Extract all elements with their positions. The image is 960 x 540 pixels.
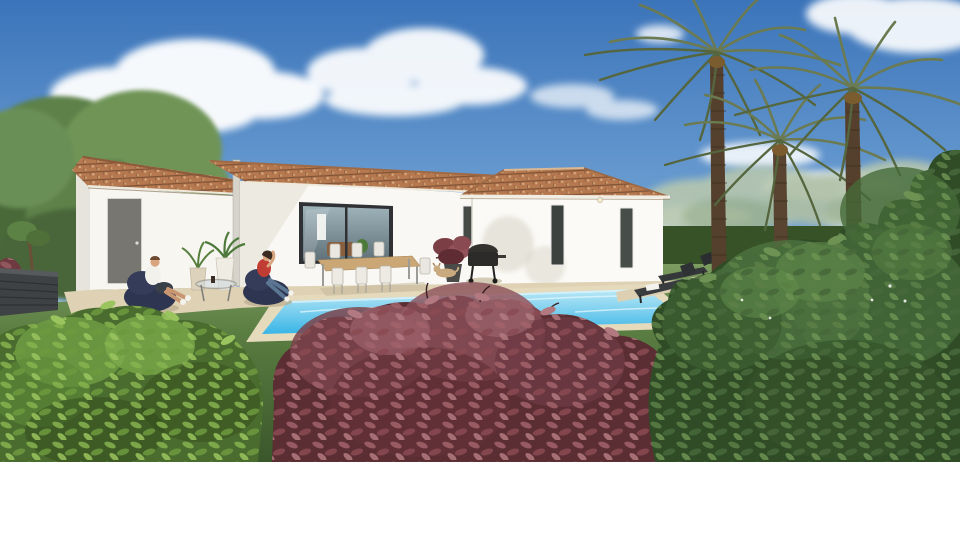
- property-render-photo: [0, 0, 960, 462]
- storage-box: [0, 268, 58, 316]
- bbq-side-shelf: [498, 255, 506, 258]
- house: [72, 156, 670, 302]
- wing-fascia: [460, 196, 670, 197]
- left-wing-side-wall: [76, 166, 90, 302]
- wing-window-left: [551, 205, 564, 265]
- caption-band: Véronique CHAUVET 06.28.31.67.99.: [0, 462, 960, 540]
- real-estate-listing-image: Véronique CHAUVET 06.28.31.67.99.: [0, 0, 960, 540]
- entry-door: [107, 198, 142, 284]
- door-handle: [135, 241, 138, 244]
- downspout: [233, 160, 240, 286]
- date-cluster: [709, 56, 725, 68]
- man-shirt: [145, 265, 161, 285]
- wall-light: [597, 197, 602, 202]
- cup: [211, 276, 215, 283]
- wing-window-right: [620, 208, 633, 268]
- woman-top: [257, 259, 271, 277]
